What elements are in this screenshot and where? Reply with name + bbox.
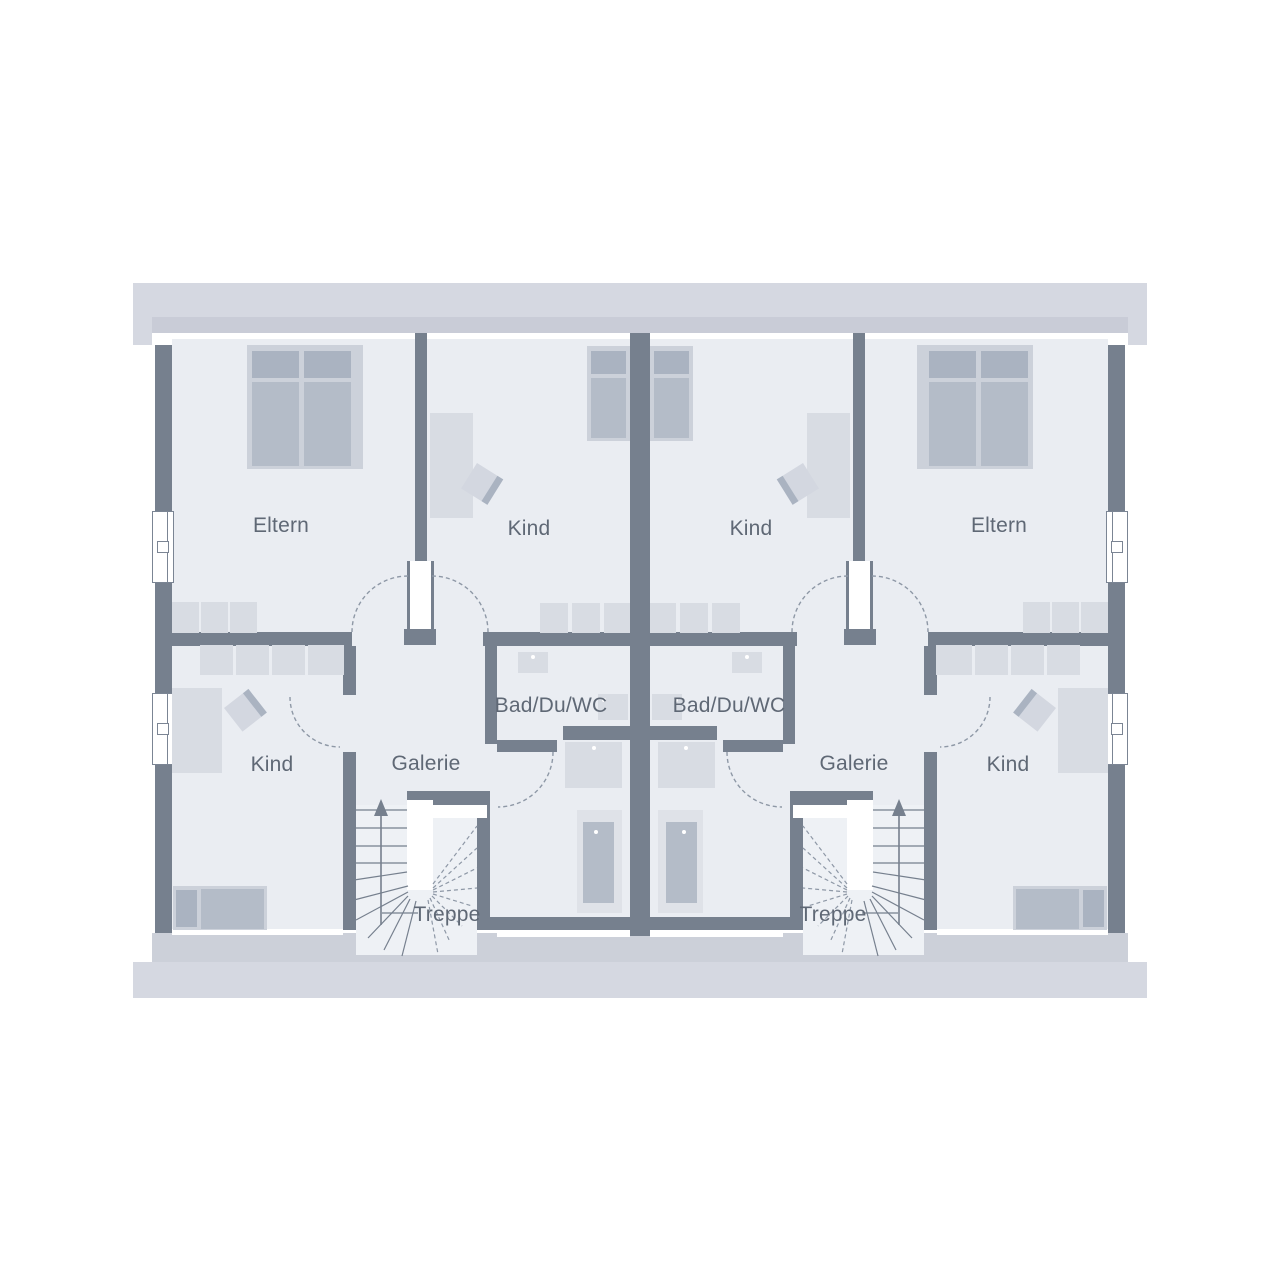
room-label-kind-top: Kind — [508, 517, 551, 541]
wall-eltern-kind — [853, 333, 865, 561]
bed-mattress — [929, 382, 976, 466]
room-label-kind-bottom: Kind — [987, 753, 1030, 777]
cabinet-dot — [592, 746, 596, 750]
wall-eltern-kind-bottom — [928, 632, 1125, 646]
wardrobe-cell — [201, 602, 228, 633]
sideboard-cell — [1011, 645, 1044, 675]
roof-eave-shadow — [152, 317, 640, 333]
wall-bath-top — [640, 632, 797, 646]
bed-pillow — [981, 351, 1028, 378]
room-label-treppe: Treppe — [414, 903, 481, 927]
floorplan: Eltern Kind Bad/Du/WC Galerie Kind Trepp… — [0, 0, 1280, 1280]
wardrobe-cell — [1081, 602, 1108, 633]
roof-eave-top — [640, 283, 1147, 317]
ground-strip — [640, 962, 1147, 998]
washbasin — [732, 652, 762, 673]
sideboard-cell — [604, 603, 630, 633]
bed-pillow — [929, 351, 976, 378]
ground-strip — [133, 962, 640, 998]
desk — [1058, 688, 1108, 773]
room-label-galerie: Galerie — [819, 752, 888, 776]
bed-mattress — [201, 889, 264, 929]
top-wall-gap-line — [172, 333, 630, 339]
wardrobe-cell — [1052, 602, 1079, 633]
window-kind — [152, 693, 174, 765]
sideboard-cell — [680, 603, 708, 633]
shower-glass — [583, 822, 614, 903]
wall-bath-bottom — [640, 726, 717, 740]
bed-pillow — [252, 351, 299, 378]
bed-mattress — [981, 382, 1028, 466]
door-frame-left — [870, 561, 873, 631]
wall-eltern-kind-bottom — [155, 632, 352, 646]
bed-pillow — [304, 351, 351, 378]
desk — [430, 413, 473, 518]
sideboard-cell — [1047, 645, 1080, 675]
shower-head-dot — [594, 830, 598, 834]
floorplan-unit-left: Eltern Kind Bad/Du/WC Galerie Kind Trepp… — [0, 0, 640, 1280]
bed-mattress — [1016, 889, 1079, 929]
sideboard-cell — [975, 645, 1008, 675]
washbasin — [518, 652, 548, 673]
wall-kind-galerie-lower — [343, 752, 356, 930]
floorplan-page: Eltern Kind Bad/Du/WC Galerie Kind Trepp… — [0, 0, 1280, 1280]
door-frame-left — [407, 561, 410, 631]
desk — [807, 413, 850, 518]
shower-glass — [666, 822, 697, 903]
bed-pillow — [591, 351, 626, 374]
sideboard-cell — [236, 645, 269, 675]
roof-eave-top — [133, 283, 640, 317]
window-handle — [1111, 541, 1123, 553]
sideboard-cell — [308, 645, 344, 675]
roof-eave-corner — [133, 317, 152, 345]
window-handle — [1111, 723, 1123, 735]
wall-eltern-kind — [415, 333, 427, 561]
wall-bath-top — [483, 632, 640, 646]
bed-mattress — [591, 378, 626, 438]
sideboard-cell — [540, 603, 568, 633]
cabinet — [658, 742, 715, 788]
bed-mattress — [654, 378, 689, 438]
door-stub-cap — [844, 629, 876, 645]
window-handle — [157, 541, 169, 553]
door-leaf-panel — [849, 561, 871, 631]
top-wall-gap-line — [650, 333, 1108, 339]
door-leaf-panel — [409, 561, 431, 631]
room-label-galerie: Galerie — [391, 752, 460, 776]
wardrobe-cell — [172, 602, 199, 633]
room-label-treppe: Treppe — [800, 903, 867, 927]
room-label-eltern: Eltern — [971, 514, 1027, 538]
stair-void — [407, 800, 433, 890]
bed-pillow — [1083, 890, 1104, 927]
wall-bath-door-cap — [723, 740, 783, 752]
window-band-bottom-mid — [650, 930, 783, 937]
room-label-kind-bottom: Kind — [251, 753, 294, 777]
tap-dot — [531, 655, 535, 659]
wall-kind-galerie-lower — [924, 752, 937, 930]
stair-void — [847, 800, 873, 890]
room-label-kind-top: Kind — [730, 517, 773, 541]
wall-bath-bottom — [563, 726, 640, 740]
bed-mattress — [252, 382, 299, 466]
bed-pillow — [654, 351, 689, 374]
cabinet — [565, 742, 622, 788]
wall-kind-galerie-upper — [343, 646, 356, 695]
sideboard-cell — [936, 645, 972, 675]
stair-cut-band — [433, 805, 487, 818]
door-stub-cap — [404, 629, 436, 645]
desk — [172, 688, 222, 773]
roof-eave-corner — [1128, 317, 1147, 345]
window-eltern — [152, 511, 174, 583]
wardrobe-cell — [1023, 602, 1050, 633]
cabinet-dot — [684, 746, 688, 750]
room-label-bad: Bad/Du/WC — [495, 694, 608, 718]
sideboard-cell — [650, 603, 676, 633]
wall-bath-door-cap — [497, 740, 557, 752]
window-band-bottom-mid — [497, 930, 630, 937]
window-kind — [1106, 693, 1128, 765]
door-frame-right — [846, 561, 849, 631]
room-label-bad: Bad/Du/WC — [673, 694, 786, 718]
sideboard-cell — [572, 603, 600, 633]
wardrobe-cell — [230, 602, 257, 633]
exterior-wall-bottom-mid — [490, 917, 640, 930]
exterior-wall-bottom-mid — [640, 917, 790, 930]
tap-dot — [745, 655, 749, 659]
sideboard-cell — [272, 645, 305, 675]
room-label-eltern: Eltern — [253, 514, 309, 538]
door-frame-right — [431, 561, 434, 631]
floorplan-unit-right: Eltern Kind Bad/Du/WC Galerie Kind Trepp… — [640, 0, 1280, 1280]
bed-pillow — [176, 890, 197, 927]
bed-mattress — [304, 382, 351, 466]
window-eltern — [1106, 511, 1128, 583]
window-handle — [157, 723, 169, 735]
roof-eave-shadow — [640, 317, 1128, 333]
stair-cut-band — [793, 805, 847, 818]
sideboard-cell — [200, 645, 233, 675]
shower-head-dot — [682, 830, 686, 834]
sideboard-cell — [712, 603, 740, 633]
